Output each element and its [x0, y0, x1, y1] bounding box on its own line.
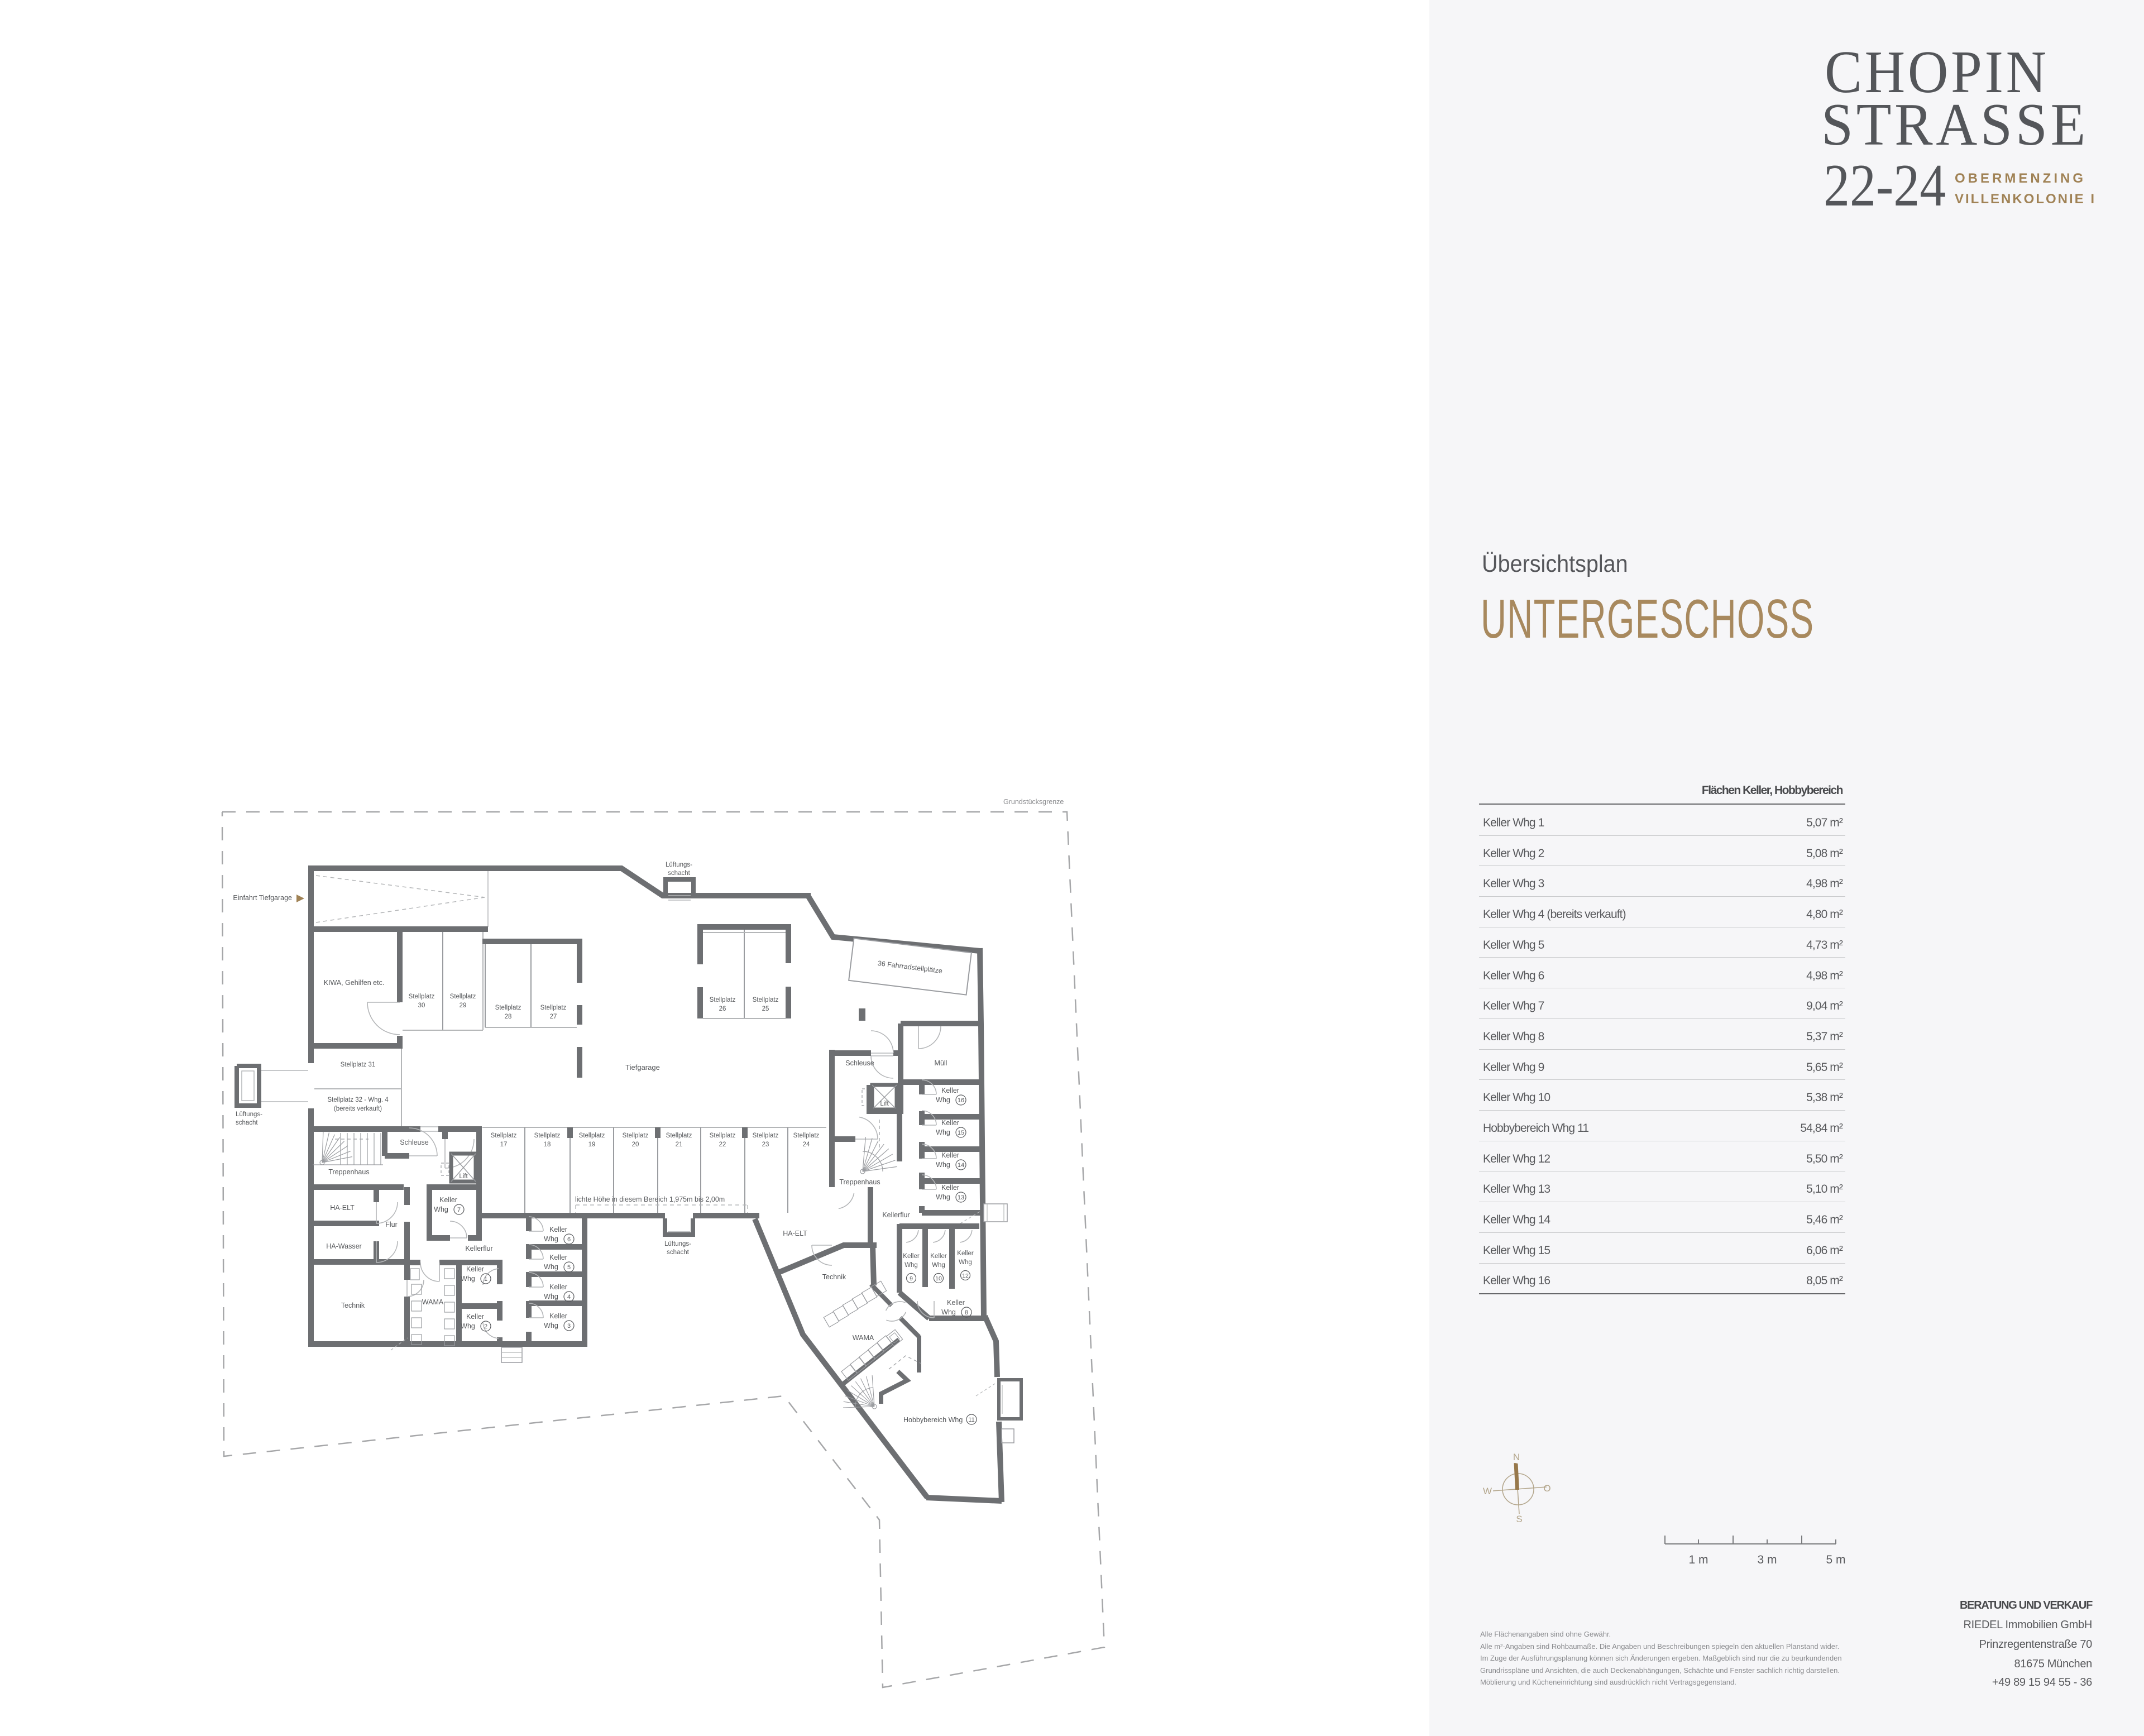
svg-text:28: 28 — [505, 1013, 512, 1020]
svg-text:8: 8 — [965, 1309, 968, 1316]
svg-text:26: 26 — [719, 1006, 726, 1012]
svg-text:19: 19 — [588, 1141, 596, 1148]
svg-text:Keller: Keller — [930, 1253, 947, 1260]
svg-text:Treppenhaus: Treppenhaus — [839, 1178, 880, 1186]
svg-text:Whg: Whg — [941, 1308, 956, 1316]
svg-text:Whg: Whg — [936, 1193, 950, 1201]
svg-text:lichte Höhe in diesem Bereich: lichte Höhe in diesem Bereich 1,975m bis… — [575, 1195, 725, 1203]
svg-text:6: 6 — [567, 1236, 571, 1243]
svg-text:WAMA: WAMA — [422, 1298, 444, 1306]
svg-text:30: 30 — [418, 1002, 425, 1009]
svg-text:Whg: Whg — [434, 1206, 448, 1213]
svg-text:24: 24 — [803, 1141, 810, 1148]
svg-text:Whg: Whg — [932, 1262, 945, 1269]
svg-text:Stellplatz: Stellplatz — [540, 1005, 567, 1011]
svg-text:KIWA, Gehilfen etc.: KIWA, Gehilfen etc. — [324, 979, 385, 987]
svg-text:29: 29 — [460, 1002, 467, 1009]
svg-text:Einfahrt Tiefgarage: Einfahrt Tiefgarage — [233, 894, 292, 902]
svg-text:Whg: Whg — [936, 1096, 950, 1104]
svg-text:Technik: Technik — [341, 1302, 365, 1309]
svg-text:Stellplatz: Stellplatz — [710, 997, 736, 1003]
svg-text:Keller: Keller — [941, 1087, 959, 1094]
svg-text:7: 7 — [457, 1207, 461, 1213]
svg-text:Technik: Technik — [822, 1273, 846, 1281]
svg-text:9: 9 — [910, 1275, 913, 1282]
svg-text:11: 11 — [968, 1417, 974, 1423]
svg-text:14: 14 — [958, 1162, 964, 1169]
svg-text:Müll: Müll — [935, 1059, 947, 1067]
svg-text:Stellplatz: Stellplatz — [450, 993, 476, 1000]
svg-text:HA-ELT: HA-ELT — [783, 1230, 807, 1237]
svg-text:Stellplatz: Stellplatz — [491, 1132, 517, 1139]
svg-text:Lüftungs-: Lüftungs- — [664, 1241, 691, 1247]
svg-text:(bereits verkauft): (bereits verkauft) — [334, 1106, 382, 1112]
svg-text:22: 22 — [719, 1141, 726, 1148]
svg-text:Keller: Keller — [549, 1312, 567, 1320]
svg-text:Treppenhaus: Treppenhaus — [328, 1168, 369, 1176]
svg-text:1: 1 — [484, 1276, 487, 1283]
svg-text:23: 23 — [762, 1141, 769, 1148]
svg-text:Stellplatz: Stellplatz — [753, 1132, 779, 1139]
svg-text:Lüftungs-: Lüftungs- — [236, 1111, 262, 1118]
svg-text:Stellplatz: Stellplatz — [793, 1132, 820, 1139]
svg-text:Stellplatz: Stellplatz — [579, 1132, 605, 1139]
svg-text:18: 18 — [544, 1141, 551, 1148]
svg-text:Hobbybereich Whg: Hobbybereich Whg — [903, 1416, 963, 1424]
svg-text:3: 3 — [567, 1323, 571, 1330]
svg-text:Keller: Keller — [439, 1196, 457, 1204]
svg-text:Lüftungs-: Lüftungs- — [666, 862, 692, 868]
svg-text:Stellplatz: Stellplatz — [753, 997, 779, 1003]
svg-text:Keller: Keller — [957, 1250, 974, 1257]
svg-text:15: 15 — [958, 1130, 964, 1136]
svg-text:Whg: Whg — [544, 1322, 558, 1330]
svg-text:Keller: Keller — [903, 1253, 920, 1260]
svg-text:WAMA: WAMA — [853, 1334, 874, 1342]
svg-text:Flur: Flur — [385, 1221, 398, 1228]
svg-text:2: 2 — [484, 1323, 487, 1330]
svg-text:Whg: Whg — [544, 1293, 558, 1300]
svg-text:Stellplatz: Stellplatz — [666, 1132, 692, 1139]
svg-text:25: 25 — [762, 1006, 769, 1012]
svg-text:4: 4 — [567, 1294, 571, 1300]
svg-text:Tiefgarage: Tiefgarage — [625, 1063, 660, 1072]
svg-text:Whg: Whg — [461, 1275, 475, 1283]
svg-text:Stellplatz: Stellplatz — [623, 1132, 649, 1139]
svg-text:10: 10 — [935, 1275, 942, 1282]
svg-text:O: O — [1543, 1483, 1550, 1494]
svg-text:Whg: Whg — [904, 1262, 918, 1269]
svg-text:Grundstücksgrenze: Grundstücksgrenze — [1003, 798, 1064, 806]
svg-text:Schleuse: Schleuse — [845, 1059, 874, 1067]
svg-text:Kellerflur: Kellerflur — [465, 1245, 492, 1252]
svg-text:Keller: Keller — [466, 1265, 484, 1273]
svg-text:schacht: schacht — [236, 1120, 258, 1126]
svg-text:12: 12 — [962, 1273, 969, 1279]
svg-text:Stellplatz: Stellplatz — [534, 1132, 561, 1139]
svg-text:HA-ELT: HA-ELT — [330, 1204, 355, 1212]
svg-text:27: 27 — [550, 1013, 557, 1020]
svg-text:16: 16 — [958, 1097, 964, 1104]
svg-text:Lift: Lift — [880, 1101, 889, 1107]
svg-text:Whg: Whg — [461, 1322, 475, 1330]
svg-text:Schleuse: Schleuse — [400, 1139, 428, 1146]
svg-text:21: 21 — [676, 1141, 683, 1148]
svg-text:HA-Wasser: HA-Wasser — [326, 1242, 361, 1250]
svg-text:Keller: Keller — [941, 1151, 959, 1159]
svg-text:20: 20 — [632, 1141, 639, 1148]
svg-text:S: S — [1516, 1514, 1522, 1524]
svg-text:Keller: Keller — [941, 1184, 959, 1192]
svg-text:Keller: Keller — [549, 1226, 567, 1233]
svg-text:Keller: Keller — [466, 1313, 484, 1321]
svg-text:Stellplatz: Stellplatz — [710, 1132, 736, 1139]
svg-text:Stellplatz 31: Stellplatz 31 — [341, 1061, 376, 1068]
svg-text:schacht: schacht — [668, 870, 690, 877]
svg-text:13: 13 — [958, 1194, 964, 1201]
svg-text:Kellerflur: Kellerflur — [882, 1211, 910, 1219]
svg-text:Whg: Whg — [544, 1235, 558, 1243]
svg-text:Whg: Whg — [544, 1263, 558, 1271]
svg-text:Keller: Keller — [947, 1299, 965, 1307]
svg-text:schacht: schacht — [667, 1249, 689, 1256]
svg-text:Whg: Whg — [936, 1128, 950, 1136]
svg-text:Lift: Lift — [459, 1173, 468, 1180]
svg-text:Stellplatz: Stellplatz — [409, 993, 435, 1000]
svg-text:Whg: Whg — [936, 1161, 950, 1169]
svg-text:1 m: 1 m — [1688, 1553, 1708, 1566]
svg-text:Stellplatz 32 - Whg. 4: Stellplatz 32 - Whg. 4 — [327, 1097, 389, 1103]
svg-text:17: 17 — [500, 1141, 508, 1148]
svg-text:Keller: Keller — [549, 1254, 567, 1261]
svg-text:W: W — [1483, 1486, 1492, 1496]
svg-text:N: N — [1513, 1452, 1520, 1462]
svg-text:Whg: Whg — [959, 1259, 972, 1266]
svg-text:Keller: Keller — [549, 1283, 567, 1291]
svg-text:Stellplatz: Stellplatz — [495, 1005, 521, 1011]
svg-text:5 m: 5 m — [1826, 1553, 1845, 1566]
svg-text:5: 5 — [567, 1264, 571, 1271]
svg-text:3 m: 3 m — [1757, 1553, 1777, 1566]
svg-text:Keller: Keller — [941, 1119, 959, 1127]
